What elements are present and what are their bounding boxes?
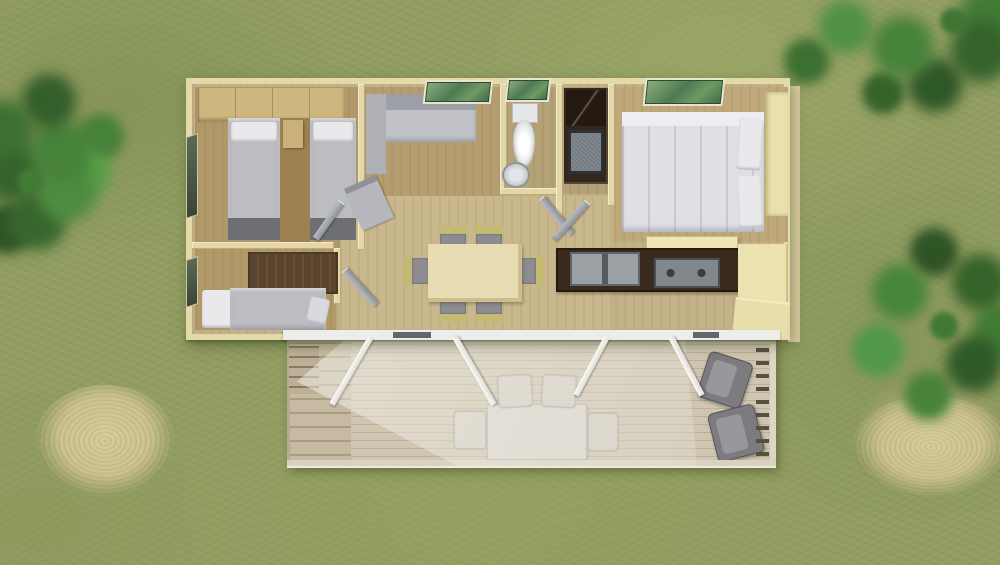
deck-railing-balusters	[756, 348, 769, 460]
bathroom-window	[505, 78, 552, 102]
front-door-track-1	[393, 332, 431, 338]
corner-washbasin	[502, 162, 530, 188]
tree-top-left	[18, 168, 44, 194]
single-bed-1-foot	[228, 218, 280, 240]
dining-table	[428, 244, 522, 302]
dry-grass-tuft-right	[852, 396, 1000, 498]
single-bed-1-pillow	[231, 122, 277, 142]
kitchen-sink	[570, 252, 640, 286]
kitchen-cabinet-right	[738, 244, 788, 302]
house	[186, 78, 790, 340]
armchair-cushion	[715, 413, 749, 454]
chair-back	[536, 256, 544, 286]
master-skylight	[643, 78, 726, 106]
twin-nightstand	[283, 120, 303, 148]
chair-back	[438, 226, 468, 234]
tree-top-right	[940, 8, 966, 34]
dining-chair-5	[404, 256, 430, 286]
second-bedroom-side-window	[186, 256, 198, 308]
lounge-armchair-1	[696, 350, 755, 410]
master-pillow-2	[737, 175, 764, 228]
wall-twin-bottom	[192, 242, 334, 249]
scene	[0, 0, 1000, 565]
wall-bathroom-shower	[556, 84, 563, 220]
wall-bathroom-bottom	[500, 188, 562, 195]
dry-grass-tuft-left	[35, 385, 175, 497]
deck-railing-rail	[770, 344, 776, 466]
second-bed-pillow	[202, 290, 232, 328]
master-wardrobe	[764, 92, 788, 216]
chair-back	[474, 226, 504, 234]
bush-right	[930, 312, 958, 340]
sofa-arm	[366, 94, 386, 174]
chair-back	[438, 314, 468, 322]
single-bed-2-pillow	[313, 122, 353, 142]
front-door-track-2	[693, 332, 719, 338]
armchair-cushion	[705, 359, 738, 399]
twin-bedroom-wardrobe	[198, 88, 344, 122]
kitchen-cooktop	[654, 258, 720, 288]
wall-master-left	[608, 84, 615, 206]
vanity-washbasin	[568, 130, 604, 174]
chair-back	[474, 314, 504, 322]
shower-top	[566, 90, 606, 126]
lounge-skylight	[423, 80, 494, 104]
chair-back	[404, 256, 412, 286]
twin-bedroom-side-window	[186, 133, 198, 219]
master-pillow-1	[736, 117, 764, 171]
